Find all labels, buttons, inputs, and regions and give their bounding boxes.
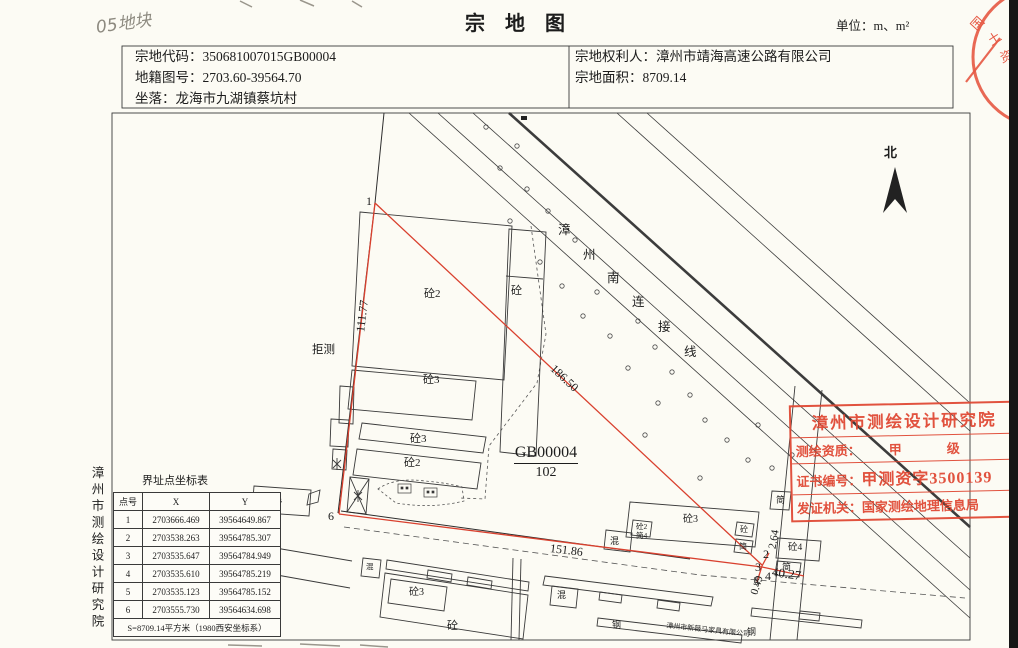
parcel-map-sheet: 宗 地 图 单位：m、m² 05地块 宗地代码：350681007015GB00… [0, 0, 1018, 648]
coords-table-title: 界址点坐标表 [142, 476, 208, 487]
cell: 39564649.867 [210, 511, 281, 529]
field-sheet-number-value: 2703.60-39564.70 [203, 70, 302, 85]
parcel-denominator: 102 [514, 464, 578, 481]
building-label-tong2-e: 砼2 [404, 458, 421, 469]
coords-footer-row: S=8709.14平方米（1980西安坐标系） [114, 619, 281, 637]
cell: 2703538.263 [143, 529, 210, 547]
building-label-gang-left: 钢 [612, 621, 621, 630]
building-label-tong3-mid: 砼3 [683, 515, 698, 525]
field-sheet-number-label: 地籍图号： [135, 70, 203, 85]
cell: 5 [114, 583, 143, 601]
building-label-hun-bottom: 混 [557, 591, 566, 600]
col-y: Y [210, 493, 281, 511]
road-name-char-3: 连 [632, 296, 645, 309]
boundary-point-label-6: 6 [328, 510, 334, 522]
field-area-label: 宗地面积： [575, 70, 643, 85]
stamp-institute-name: 漳州市测绘设计研究院 [791, 403, 1018, 439]
cell: 6 [114, 601, 143, 619]
cell: 2703535.647 [143, 547, 210, 565]
road-name-char-2: 南 [607, 272, 620, 285]
building-label-hun-mid: 混 [610, 537, 619, 546]
field-owner-value: 漳州市靖海高速公路有限公司 [656, 49, 832, 64]
cell: 2703555.730 [143, 601, 210, 619]
road-name-char-1: 州 [583, 249, 596, 262]
building-label-tong2-tiny: 砼2 [636, 523, 647, 531]
boundary-point-label-4: 4 [765, 570, 771, 582]
canopy-dotted [378, 480, 464, 506]
building-label-tong3-bottom: 砼3 [409, 588, 424, 598]
stamp-certificate: 证书编号：甲测资字3500139 [792, 460, 1018, 496]
field-parcel-code-label: 宗地代码： [135, 49, 203, 64]
table-row: 42703535.61039564785.219 [114, 565, 281, 583]
north-arrow [883, 167, 907, 213]
coords-header-row: 点号 X Y [114, 493, 281, 511]
cell: 39564785.307 [210, 529, 281, 547]
distance-label-west: 111.77 [354, 299, 370, 332]
distance-label-south: 151.86 [549, 542, 583, 558]
cell: 39564634.698 [210, 601, 281, 619]
cell: 2 [114, 529, 143, 547]
building-label-tong4: 砼4 [788, 544, 802, 554]
cell: 1 [114, 511, 143, 529]
building-label-hun-shed: 混 [366, 563, 374, 571]
stamp-authority: 发证机关：国家测绘地理信息局 [793, 491, 1018, 521]
table-row: 22703538.26339564785.307 [114, 529, 281, 547]
cell: 39564785.152 [210, 583, 281, 601]
stamp-certificate-label: 证书编号： [796, 473, 861, 489]
building-label-tong-tiny: 砼 [740, 526, 748, 534]
boundary-point-label-3: 3 [755, 561, 761, 573]
distance-label-4027: 40.27 [771, 565, 802, 582]
parcel-number: GB00004 [514, 444, 578, 464]
page-title: 宗 地 图 [450, 14, 580, 34]
cell: 2703535.123 [143, 583, 210, 601]
building-label-jian4-tiny: 简4 [636, 532, 647, 540]
coords-table: 点号 X Y 12703666.46939564649.867 22703538… [113, 492, 281, 637]
field-area-value: 8709.14 [643, 70, 687, 85]
building-label-tong-bottom: 砼 [447, 621, 458, 632]
refused-survey-label: 拒测 [312, 345, 335, 357]
building-label-tong3-d: 砼3 [410, 434, 427, 445]
cell: 2703666.469 [143, 511, 210, 529]
stamp-certificate-value: 甲测资字3500139 [861, 469, 992, 489]
col-x: X [143, 493, 210, 511]
certification-stamp: 漳州市测绘设计研究院 测绘资质：甲 级 证书编号：甲测资字3500139 发证机… [789, 401, 1018, 523]
stamp-qualification-label: 测绘资质： [796, 443, 861, 459]
boundary-point-label-1: 1 [366, 195, 372, 207]
road-name-char-4: 接 [658, 321, 671, 334]
north-label: 北 [884, 146, 897, 159]
building-label-tong-b: 砼 [511, 286, 522, 297]
field-location: 坐落：龙海市九湖镇蔡坑村 [135, 92, 297, 106]
field-area: 宗地面积：8709.14 [575, 71, 686, 85]
road-name-char-5: 线 [684, 346, 697, 359]
col-point: 点号 [114, 493, 143, 511]
canopy-boxes [398, 484, 437, 497]
building-label-jian-tiny: 简 [739, 543, 747, 551]
table-row: 62703555.73039564634.698 [114, 601, 281, 619]
building-label-tong2-a: 砼2 [424, 289, 441, 300]
building-label-gang-right: 钢 [747, 628, 756, 637]
cell: 2703535.610 [143, 565, 210, 583]
table-row: 52703535.12339564785.152 [114, 583, 281, 601]
building-label-jian-top: 简 [776, 496, 785, 505]
stamp-authority-label: 发证机关： [797, 500, 862, 516]
stamp-qualification-value: 甲 级 [889, 441, 976, 458]
road-name-char-0: 漳 [558, 224, 571, 237]
field-parcel-code-value: 350681007015GB00004 [203, 49, 337, 64]
stamp-authority-value: 国家测绘地理信息局 [862, 497, 979, 514]
field-location-label: 坐落： [135, 91, 176, 106]
table-row: 32703535.64739564784.949 [114, 547, 281, 565]
cell: 3 [114, 547, 143, 565]
unit-label: 单位：m、m² [836, 20, 909, 33]
building-label-tong3-c: 砼3 [423, 375, 440, 386]
field-location-value: 龙海市九湖镇蔡坑村 [176, 91, 298, 106]
field-parcel-code: 宗地代码：350681007015GB00004 [135, 50, 336, 64]
area-note: S=8709.14平方米（1980西安坐标系） [114, 619, 281, 637]
field-owner: 宗地权利人：漳州市靖海高速公路有限公司 [575, 50, 832, 64]
parcel-number-fraction: GB00004 102 [514, 444, 578, 481]
surveyor-vertical-name: 漳州市测绘设计研究院 [90, 466, 103, 642]
field-sheet-number: 地籍图号：2703.60-39564.70 [135, 71, 302, 85]
boundary-point-label-2: 2 [763, 548, 769, 560]
field-owner-label: 宗地权利人： [575, 49, 656, 64]
cell: 39564784.949 [210, 547, 281, 565]
scan-edge [1009, 0, 1018, 648]
cell: 39564785.219 [210, 565, 281, 583]
cell: 4 [114, 565, 143, 583]
table-row: 12703666.46939564649.867 [114, 511, 281, 529]
